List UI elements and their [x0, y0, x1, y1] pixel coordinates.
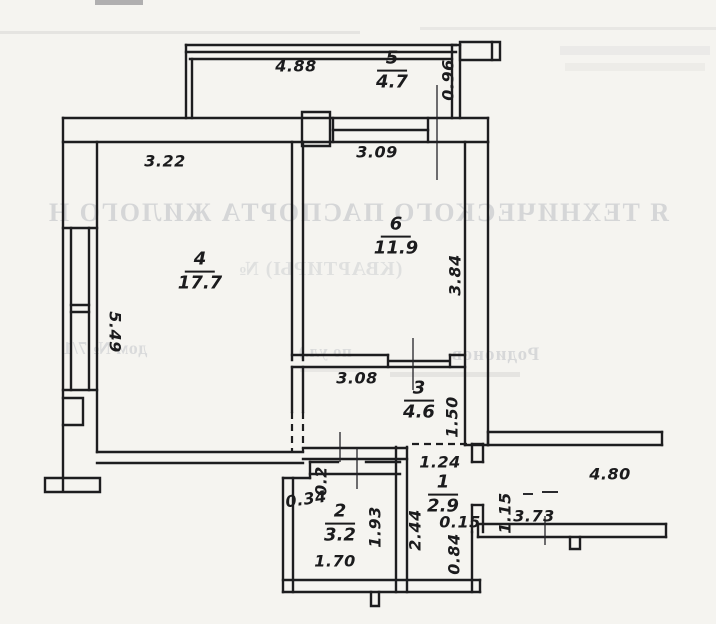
scanned-floor-plan-page: Я ТЕХНИЧЕСКОГО ПАСПОРТА ЖИЛОГО Н(КВАРТИР…: [0, 0, 716, 624]
room-area: 2.9: [427, 496, 459, 517]
window-left: [63, 228, 97, 425]
dimension-label-3.08: 3.08: [336, 369, 377, 388]
dimension-label-2.44: 2.44: [406, 509, 425, 550]
room-number: 6: [381, 216, 412, 238]
room-label-4: 417.7: [178, 251, 222, 294]
room-area: 4.7: [376, 72, 408, 93]
dimension-label-3.84: 3.84: [446, 254, 465, 295]
dimension-label-4.80: 4.80: [589, 465, 630, 484]
dimension-label-1.15: 1.15: [496, 492, 515, 533]
dimension-label-3.73: 3.73: [513, 507, 554, 526]
dimension-label-3.22: 3.22: [144, 152, 185, 171]
erased-dash-marks: [523, 492, 558, 494]
room-number: 3: [404, 380, 435, 402]
room-number: 1: [428, 474, 459, 496]
room-label-2: 23.2: [324, 503, 356, 546]
room-label-5: 54.7: [376, 50, 408, 93]
dimension-label-1.93: 1.93: [366, 506, 385, 547]
dimension-label-1.24: 1.24: [419, 453, 460, 472]
room-area: 4.6: [403, 402, 435, 423]
dimension-label-4.88: 4.88: [275, 57, 316, 76]
room-number: 5: [377, 50, 408, 72]
dimension-label-0.84: 0.84: [445, 533, 464, 574]
dimension-label-5.49: 5.49: [106, 311, 125, 352]
dimension-label-0.96: 0.96: [439, 59, 458, 100]
dimension-label-3.09: 3.09: [356, 143, 397, 162]
room-label-6: 611.9: [374, 216, 418, 259]
room-area: 17.7: [178, 273, 222, 294]
room-number: 2: [325, 503, 356, 525]
room-label-1: 12.9: [427, 474, 459, 517]
interior-walls: [97, 142, 483, 592]
dimension-label-1.70: 1.70: [314, 552, 355, 571]
room-area: 3.2: [324, 525, 356, 546]
dimension-label-1.50: 1.50: [443, 396, 462, 437]
room-area: 11.9: [374, 238, 418, 259]
room-label-3: 34.6: [403, 380, 435, 423]
room-number: 4: [185, 251, 216, 273]
